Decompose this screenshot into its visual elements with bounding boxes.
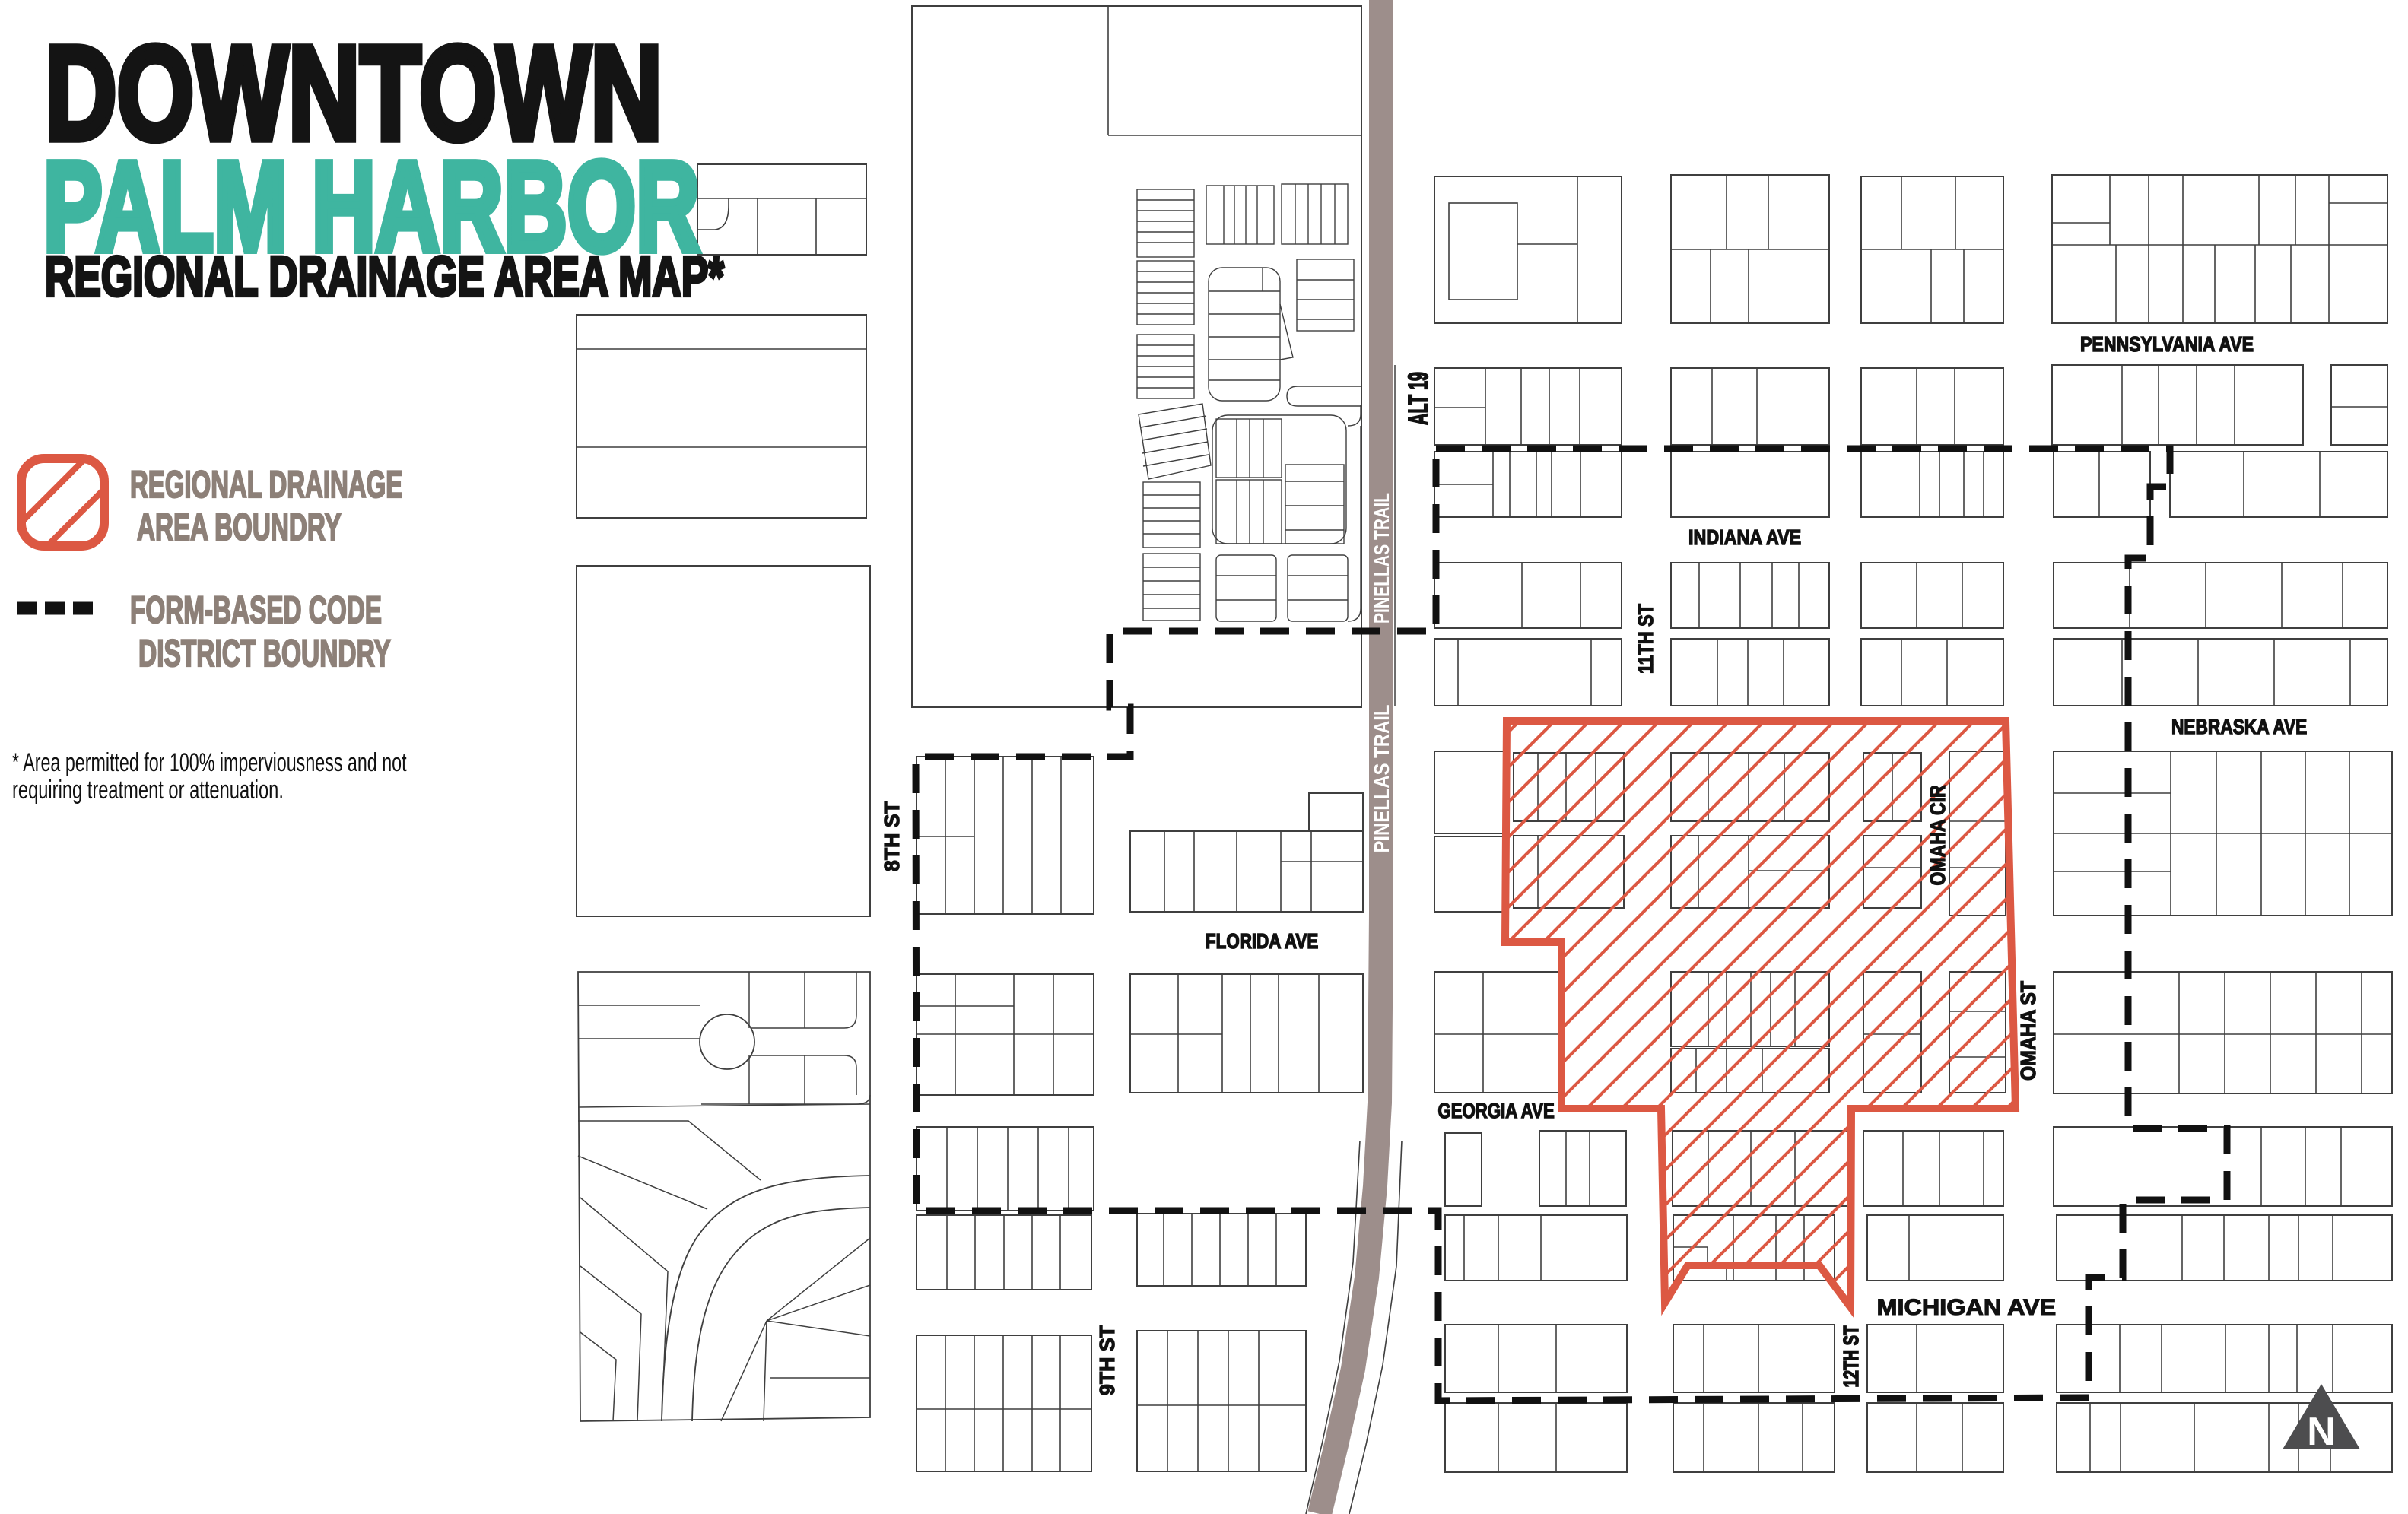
svg-text:* Area permitted for 100% impe: * Area permitted for 100% imperviousness… bbox=[12, 749, 407, 777]
svg-text:OMAHA CIR: OMAHA CIR bbox=[1927, 785, 1950, 885]
svg-text:FORM-BASED CODE: FORM-BASED CODE bbox=[130, 589, 382, 630]
svg-text:PINELLAS TRAIL: PINELLAS TRAIL bbox=[1371, 493, 1394, 624]
svg-text:ALT 19: ALT 19 bbox=[1404, 372, 1434, 425]
svg-text:PINELLAS TRAIL: PINELLAS TRAIL bbox=[1369, 704, 1393, 852]
svg-text:requiring treatment or attenua: requiring treatment or attenuation. bbox=[12, 776, 284, 805]
svg-text:INDIANA AVE: INDIANA AVE bbox=[1688, 526, 1801, 549]
svg-text:MICHIGAN AVE: MICHIGAN AVE bbox=[1877, 1294, 2057, 1320]
svg-text:GEORGIA AVE: GEORGIA AVE bbox=[1438, 1100, 1555, 1123]
svg-text:PENNSYLVANIA AVE: PENNSYLVANIA AVE bbox=[2080, 333, 2254, 357]
svg-text:DISTRICT BOUNDRY: DISTRICT BOUNDRY bbox=[138, 632, 391, 674]
svg-text:REGIONAL DRAINAGE AREA MAP*: REGIONAL DRAINAGE AREA MAP* bbox=[45, 245, 724, 308]
svg-text:N: N bbox=[2307, 1410, 2336, 1454]
svg-text:OMAHA ST: OMAHA ST bbox=[2016, 981, 2041, 1081]
svg-text:12TH ST: 12TH ST bbox=[1840, 1325, 1863, 1387]
svg-text:FLORIDA AVE: FLORIDA AVE bbox=[1206, 930, 1318, 954]
svg-text:AREA BOUNDRY: AREA BOUNDRY bbox=[137, 506, 342, 548]
svg-text:9TH ST: 9TH ST bbox=[1095, 1325, 1120, 1395]
svg-text:8TH ST: 8TH ST bbox=[880, 801, 904, 871]
svg-text:REGIONAL DRAINAGE: REGIONAL DRAINAGE bbox=[130, 463, 402, 505]
svg-text:11TH ST: 11TH ST bbox=[1634, 604, 1657, 674]
svg-text:NEBRASKA AVE: NEBRASKA AVE bbox=[2171, 716, 2307, 739]
